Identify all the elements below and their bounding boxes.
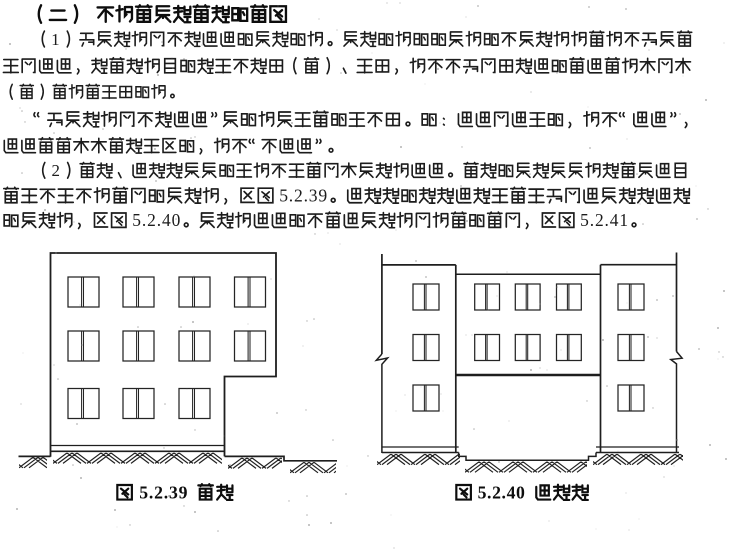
svg-text:5.2.39: 5.2.39	[139, 482, 187, 502]
svg-text:2: 2	[52, 161, 60, 180]
svg-text:5.2.40: 5.2.40	[132, 210, 180, 230]
svg-text:5.2.41: 5.2.41	[580, 210, 628, 230]
svg-text:1: 1	[51, 30, 60, 49]
svg-text:5.2.39: 5.2.39	[279, 186, 327, 206]
svg-text:5.2.40: 5.2.40	[478, 482, 525, 502]
